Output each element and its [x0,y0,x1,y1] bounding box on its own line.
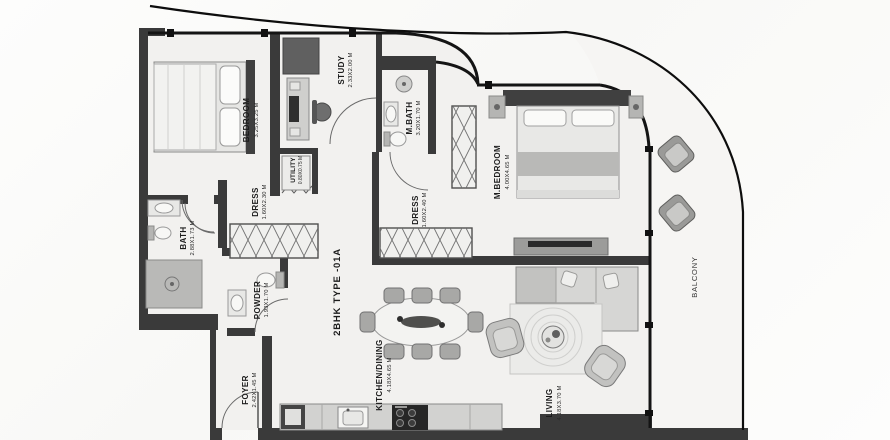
room-dims-powder: 1.93X1.70 M [264,282,270,317]
fridge-icon [281,405,305,429]
toilet-icon [148,226,171,240]
sink-icon [384,102,398,126]
coffee-table-icon [542,326,564,348]
floor-plan-canvas: 2BHK TYPE -01A BEDROOM 3.25X3.25 M STUDY… [0,0,890,440]
bed-icon [517,106,619,198]
room-dims-foyer: 2.42X1.45 M [252,372,258,407]
room-label-dress-a: DRESS [251,187,260,217]
room-label-balcony: BALCONY [690,256,699,297]
kitchen-counter [280,404,502,430]
room-label-foyer: FOYER [241,375,250,405]
floor-plan: 2BHK TYPE -01A BEDROOM 3.25X3.25 M STUDY… [0,0,890,440]
sink-icon [148,200,180,216]
headboard [503,90,631,106]
room-label-bedroom: BEDROOM [242,98,251,143]
wardrobe-icon [230,224,318,258]
dining-table-icon [372,298,470,346]
room-label-bath: BATH [179,226,188,249]
room-label-living: LIVING [545,388,554,417]
desk-icon [287,78,309,140]
plan-title: 2BHK TYPE -01A [332,248,343,336]
room-bedroom [154,60,255,154]
shower-icon [146,260,202,308]
room-dims-living: 4.18X3.70 M [557,385,563,420]
room-dims-dress-b: 1.60X2.40 M [422,192,428,227]
sink-icon [228,290,246,316]
room-label-powder: POWDER [253,281,262,319]
toilet-icon [384,132,406,146]
room-dims-mbedroom: 4.00X4.65 M [505,154,511,189]
tv-console-icon [514,238,608,255]
room-label-mbath: M.BATH [405,102,414,135]
room-dims-bath: 2.88X1.73 M [190,220,196,255]
room-label-utility: UTILITY [290,157,297,183]
study-closet [283,38,319,74]
room-dims-study: 2.33X2.00 M [348,52,354,87]
room-dims-kitchen-dining: 4.18X4.65 M [387,357,393,392]
room-dims-mbath: 3.20X1.70 M [416,100,422,135]
bed-icon [154,60,255,154]
room-dims-utility: 0.80X0.75 M [298,156,304,184]
wardrobe-icon [452,106,476,188]
wardrobe-icon [380,228,472,258]
shower-icon [396,76,412,92]
room-dims-bedroom: 3.25X3.25 M [254,102,260,137]
room-dims-dress-a: 1.60X2.30 M [262,184,268,219]
room-label-study: STUDY [337,55,346,84]
room-label-dress-b: DRESS [411,195,420,225]
room-label-kitchen-dining: KITCHEN/DINING [375,339,384,410]
kitchen-sink-icon [338,407,368,428]
room-label-mbedroom: M.BEDROOM [493,145,502,199]
stove-icon [392,405,428,430]
